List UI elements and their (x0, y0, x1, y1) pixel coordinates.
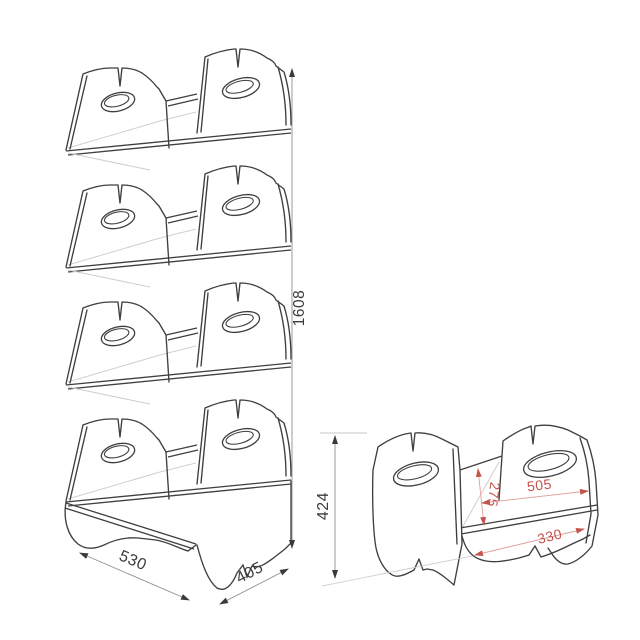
dimension-label-inner-width: 505 (526, 476, 553, 495)
dimension-label-height: 1608 (291, 290, 308, 326)
dimension-label-inner-depth: 275 (485, 481, 504, 508)
dimension-label-unit-height: 424 (315, 492, 332, 520)
drawing-canvas: 1608 530 405 (0, 0, 640, 640)
left-side-panel (373, 433, 462, 585)
furniture-dimension-drawing: 1608 530 405 (0, 0, 640, 640)
